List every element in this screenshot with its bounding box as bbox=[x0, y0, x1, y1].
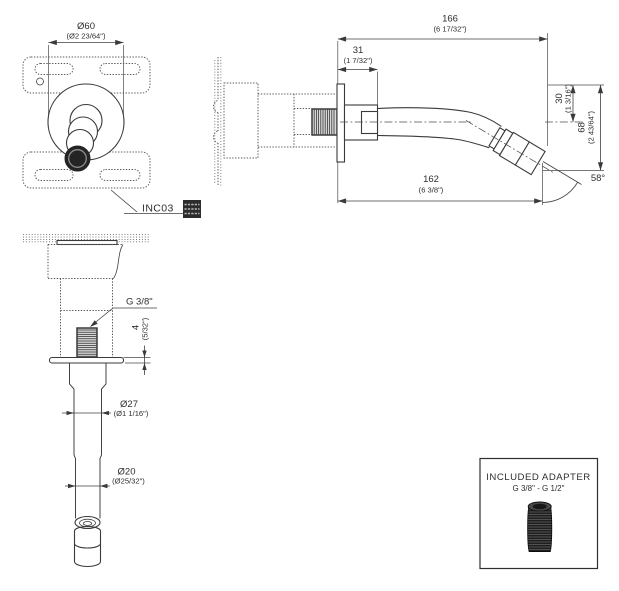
thread-nipple-side bbox=[312, 109, 337, 135]
dim-68: 68 (2 43/64") bbox=[543, 85, 604, 171]
adapter-thread-image bbox=[528, 502, 552, 552]
dim-27: Ø27 (Ø1 1/16") bbox=[62, 399, 149, 418]
dim-20-inch: (Ø25/32") bbox=[112, 477, 145, 486]
technical-drawing-page: Ø60 (Ø2 23/64") INC03 bbox=[0, 0, 619, 591]
spout-stem bbox=[70, 363, 107, 518]
dim-60-mm: Ø60 bbox=[77, 21, 95, 32]
spout-tip bbox=[487, 125, 545, 174]
dim-60-inch: (Ø2 23/64") bbox=[67, 32, 106, 41]
dim-166-mm: 166 bbox=[442, 14, 458, 25]
dim-30: 30 (1 3/16") bbox=[548, 84, 604, 122]
dim-162-inch: (6 3/8") bbox=[419, 186, 444, 195]
adapter-box: INCLUDED ADAPTER G 3/8" - G 1/2" bbox=[480, 459, 598, 569]
thread-g38 bbox=[77, 328, 97, 358]
escutcheon-edge bbox=[57, 241, 117, 245]
dim-20: Ø20 (Ø25/32") bbox=[65, 467, 145, 489]
dim-162-mm: 162 bbox=[423, 174, 439, 185]
spout-side bbox=[340, 105, 583, 175]
inc03-icon bbox=[183, 200, 201, 218]
dim-angle-label: 58° bbox=[591, 173, 606, 184]
dim-angle-58: 58° bbox=[543, 162, 606, 203]
dim-31-inch: (1 7/32") bbox=[344, 56, 373, 65]
dim-4-inch: (5/32") bbox=[141, 317, 150, 340]
aerator-tip bbox=[75, 517, 101, 567]
adapter-box-subtitle: G 3/8" - G 1/2" bbox=[513, 484, 565, 493]
dim-27-inch: (Ø1 1/16") bbox=[114, 409, 149, 418]
drawing-canvas: Ø60 (Ø2 23/64") INC03 bbox=[0, 0, 619, 591]
dim-30-inch: (1 3/16") bbox=[564, 84, 573, 113]
side-view: 166 (6 17/32") 31 (1 7/32") 30 (1 3/16")… bbox=[214, 14, 606, 206]
dim-162: 162 (6 3/8") bbox=[338, 163, 543, 205]
section-view: G 3/8" 4 (5/32") Ø27 (Ø1 1/16") Ø20 bbox=[23, 235, 157, 567]
inc03-label: INC03 bbox=[142, 203, 174, 215]
inc03-callout: INC03 bbox=[111, 190, 201, 218]
escutcheon-and-spout-front bbox=[48, 84, 124, 171]
dim-68-inch: (2 43/64") bbox=[587, 110, 596, 144]
thread-label: G 3/8" bbox=[126, 297, 153, 308]
front-view: Ø60 (Ø2 23/64") INC03 bbox=[23, 21, 201, 218]
flange bbox=[50, 358, 124, 364]
dim-4: 4 (5/32") bbox=[124, 317, 151, 375]
adapter-box-title: INCLUDED ADAPTER bbox=[486, 472, 591, 483]
dim-166-inch: (6 17/32") bbox=[433, 25, 467, 34]
dim-31-mm: 31 bbox=[353, 45, 364, 56]
wall-section-side bbox=[214, 57, 221, 186]
escutcheon-plate-side bbox=[337, 84, 345, 162]
bracket-hole bbox=[37, 78, 44, 85]
